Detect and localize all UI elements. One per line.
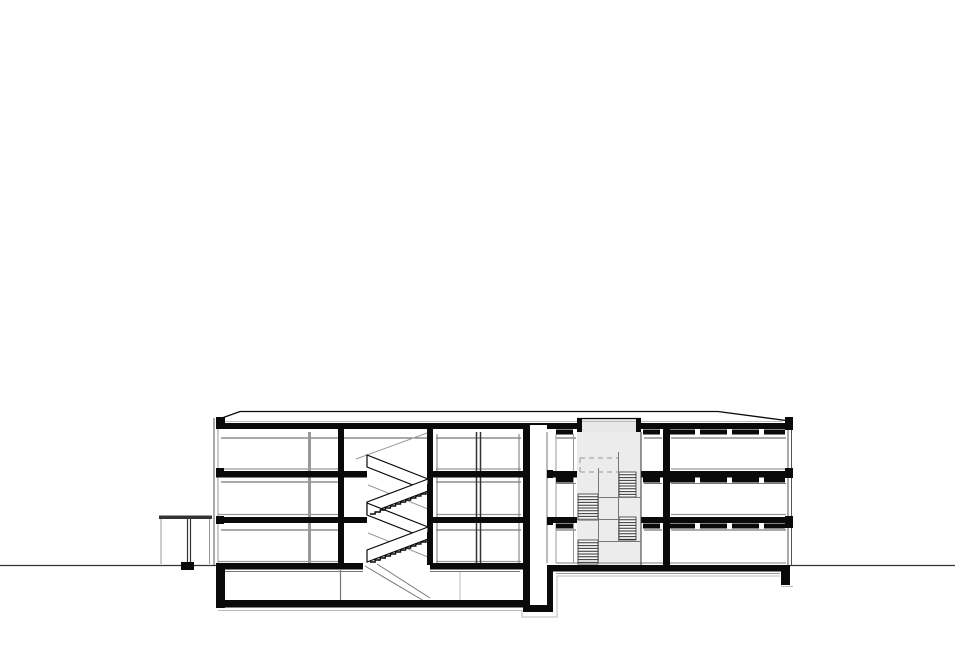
lintel-dashes-1-5	[764, 478, 785, 483]
roof-slab-right	[641, 423, 787, 429]
elevator-wall-left	[523, 425, 530, 612]
canopy-post-base	[181, 562, 194, 570]
roof-slab-left	[216, 423, 577, 429]
lintel-dashes-0-4	[732, 430, 759, 435]
lintel-dashes-1-0	[556, 478, 573, 483]
ground-slab-right	[553, 565, 790, 572]
right-wall-stub-roof	[785, 420, 793, 430]
elevator-stub-f1	[547, 517, 553, 525]
stair-landing-stub-2	[427, 532, 433, 545]
floor1-slab-mid	[553, 517, 577, 523]
right-foundation	[781, 565, 790, 585]
lintel-dashes-2-1	[643, 524, 660, 529]
lintel-dashes-2-0	[556, 524, 573, 529]
lintel-dashes-0-0	[556, 430, 573, 435]
floor1-slab-bay1	[216, 517, 367, 523]
stair-landing-stub-1	[427, 484, 433, 497]
floor2-slab-bay1	[216, 471, 367, 478]
wall-stair-left	[338, 429, 344, 567]
lintel-dashes-2-5	[764, 524, 785, 529]
ground-slab-left-b	[430, 563, 523, 570]
lintel-dashes-0-5	[764, 430, 785, 435]
bulkhead-bar-left	[577, 418, 582, 432]
elevator-void	[530, 425, 547, 605]
shaft-flight-d-box	[578, 540, 598, 564]
lintel-dashes-1-4	[732, 478, 759, 483]
left-wall-stub-f2	[216, 468, 224, 477]
floor1-slab-bay3	[433, 517, 523, 523]
lintel-dashes-0-2	[668, 430, 695, 435]
foundation-shadow	[218, 576, 780, 617]
stair-bulkhead-fill	[582, 419, 636, 432]
basement-left-wall	[216, 563, 225, 608]
elevator-wall-below	[547, 565, 553, 612]
building-section-drawing	[0, 0, 970, 646]
basement-flight-line-b	[377, 564, 430, 598]
left-wall-stub-f1	[216, 516, 224, 524]
wall-right-bay	[663, 429, 670, 567]
canopy-bar	[159, 516, 212, 520]
floor2-slab-mid	[553, 471, 577, 478]
elevator-stub-f2	[547, 470, 553, 478]
floor2-slab-bay3	[433, 471, 523, 478]
parapet-cap-left	[216, 417, 225, 425]
lintel-dashes-1-3	[700, 478, 727, 483]
shaft-flight-a-box	[619, 472, 636, 497]
lintel-dashes-0-1	[643, 430, 660, 435]
lintel-dashes-1-2	[668, 478, 695, 483]
lintel-dashes-1-1	[643, 478, 660, 483]
lintel-dashes-2-2	[668, 524, 695, 529]
lintel-dashes-2-4	[732, 524, 759, 529]
elevator-pit-bottom	[523, 605, 553, 612]
right-wall-stub-f2	[785, 468, 793, 478]
bulkhead-bar-right	[636, 418, 641, 432]
architectural-section-page	[0, 0, 970, 646]
basement-flight-line-a	[365, 566, 424, 601]
right-wall-stub-f1	[785, 516, 793, 528]
lintel-dashes-0-3	[700, 430, 727, 435]
roof-outline	[222, 412, 786, 421]
lintel-dashes-2-3	[700, 524, 727, 529]
basement-floor-slab	[216, 600, 530, 608]
